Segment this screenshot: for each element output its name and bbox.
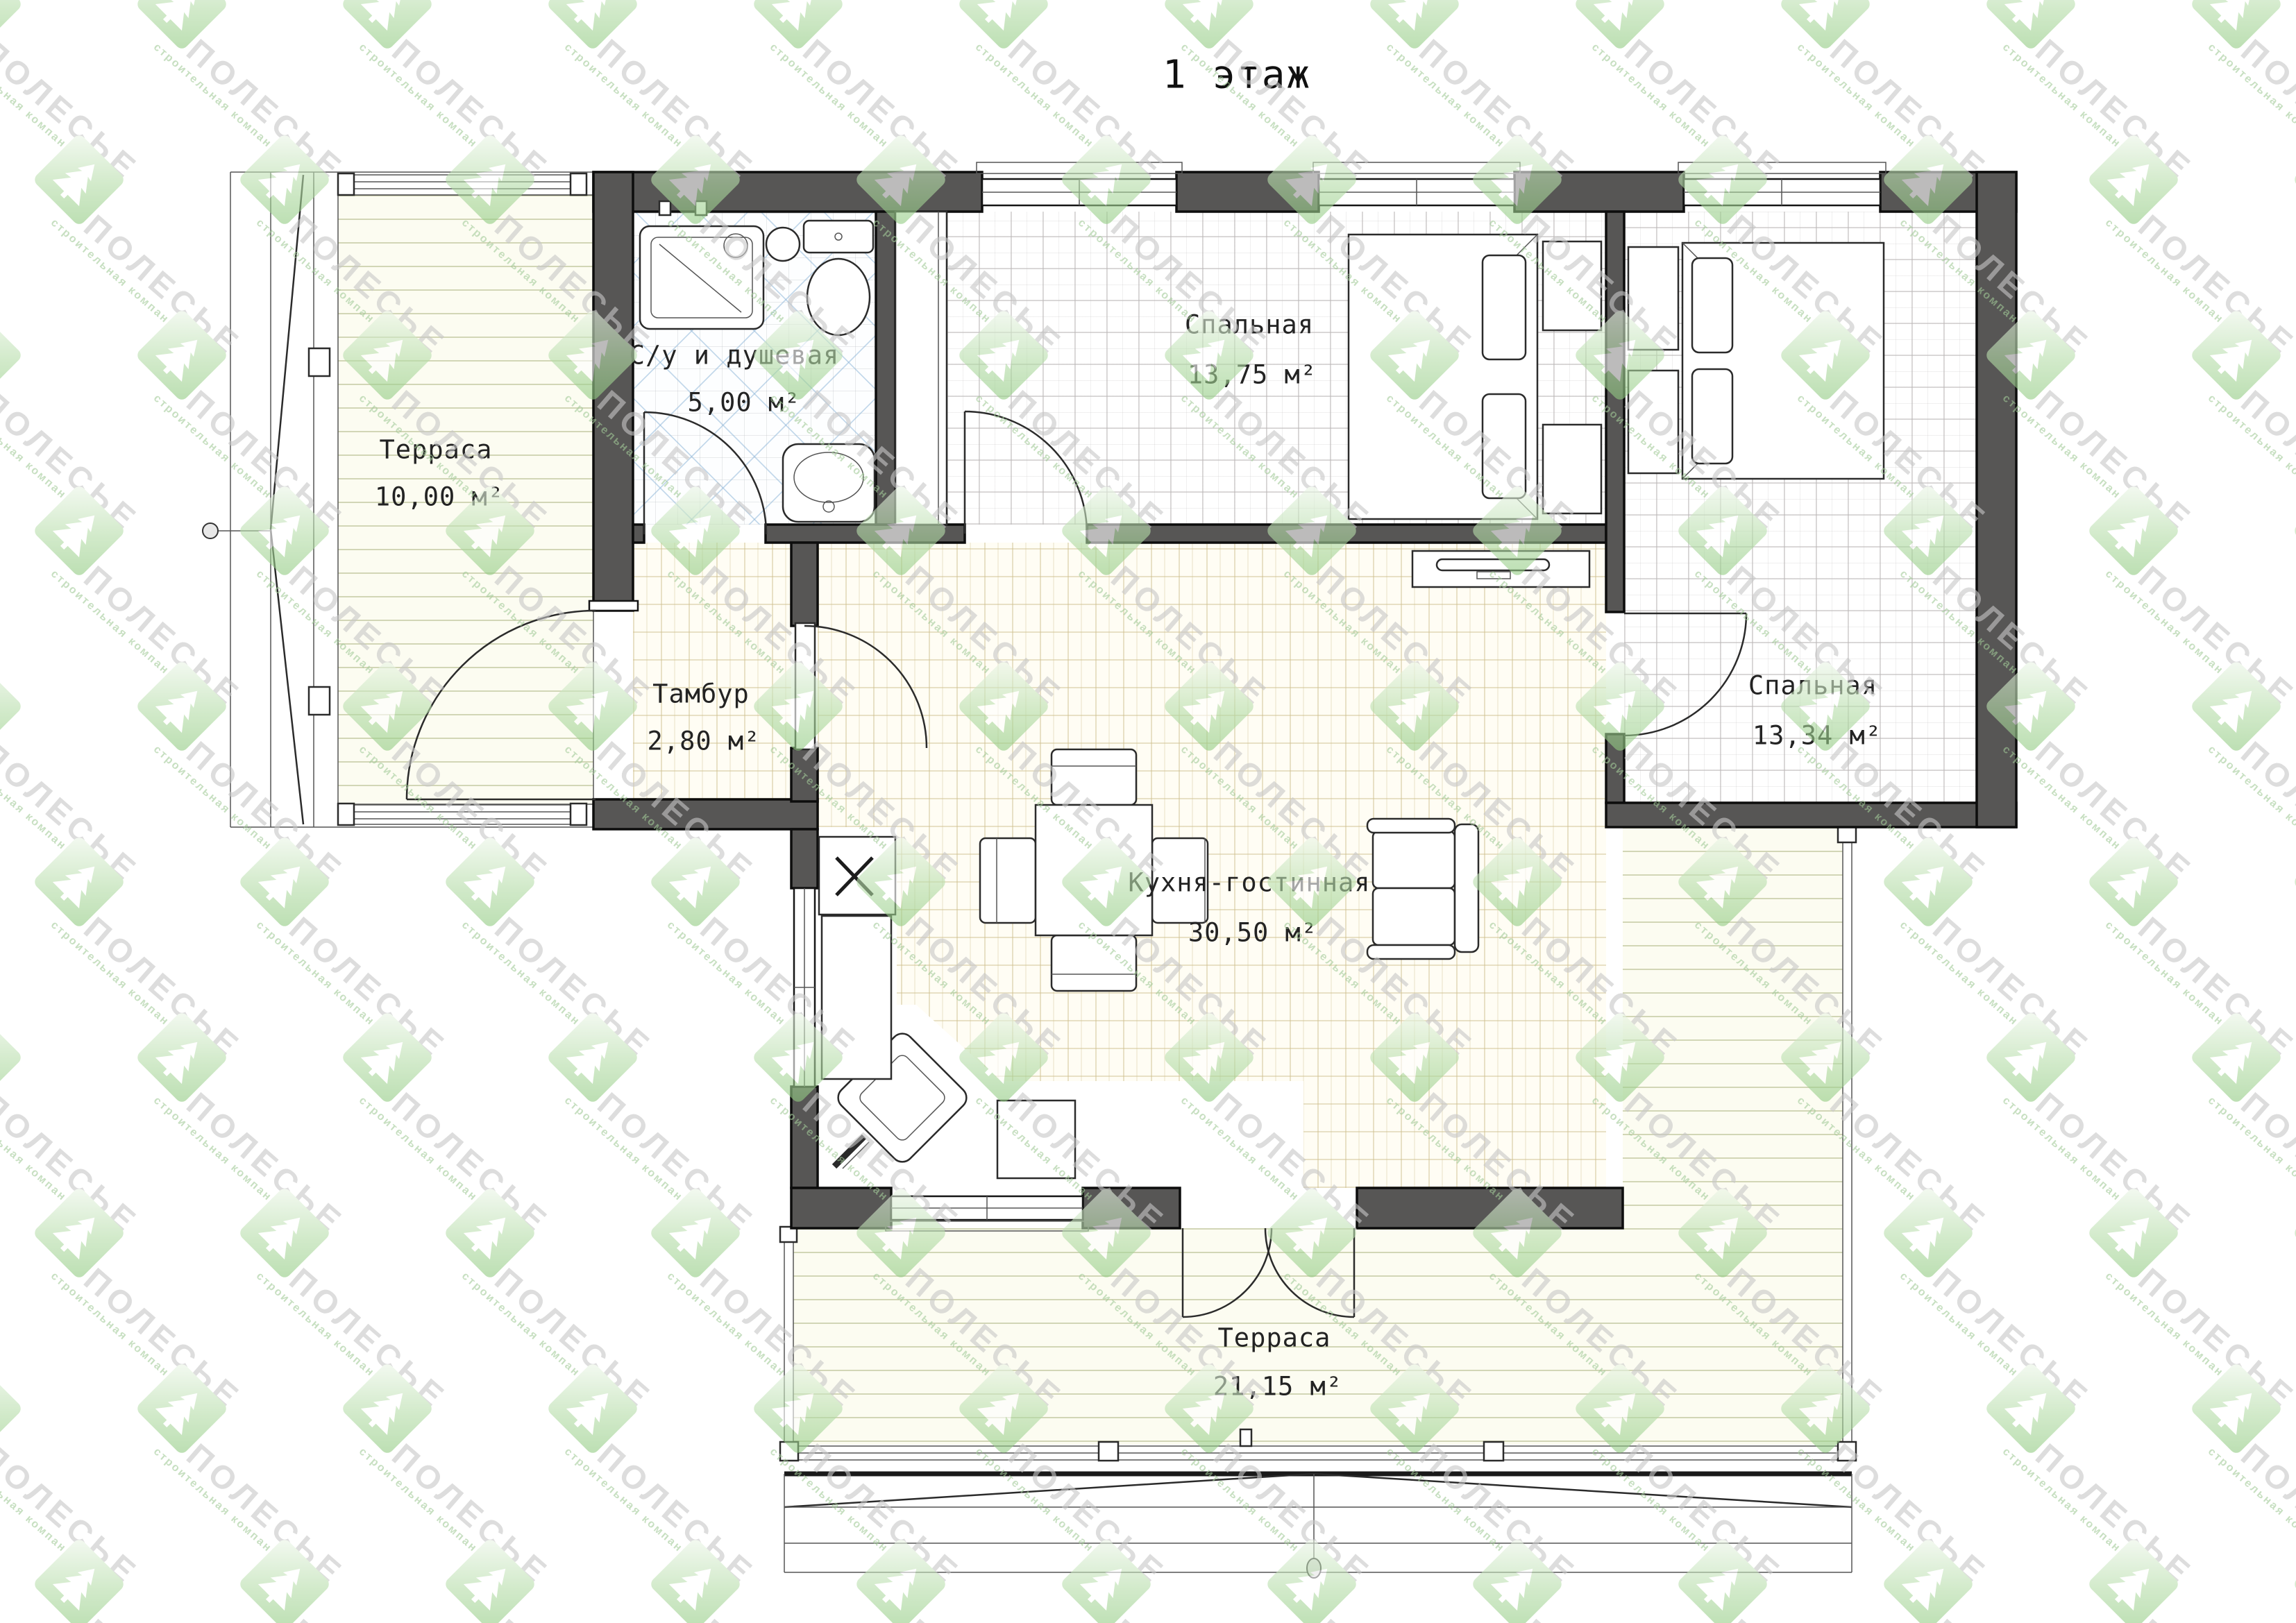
label-living-name: Кухня-гостинная	[1128, 868, 1370, 898]
datum-marker	[203, 523, 218, 538]
nightstand	[1543, 425, 1601, 513]
nightstand	[1628, 247, 1678, 350]
window	[886, 1196, 1088, 1231]
label-living-area: 30,50 м²	[1188, 918, 1317, 948]
tap	[659, 201, 670, 215]
page-title: 1 этаж	[1163, 53, 1311, 98]
pillow	[1483, 255, 1526, 359]
boiler	[766, 228, 800, 261]
datum-marker	[1307, 1558, 1321, 1578]
bedroom2-furniture	[1628, 243, 1884, 479]
label-terrace-bottom-name: Терраса	[1218, 1323, 1331, 1353]
closet-niche	[895, 212, 947, 525]
label-vestibule-area: 2,80 м²	[648, 726, 761, 756]
kitchen-block	[819, 837, 895, 1079]
label-bedroom1-area: 13,75 м²	[1188, 360, 1317, 390]
pillow	[1692, 258, 1732, 352]
sofa	[1367, 819, 1478, 959]
door-bathroom	[644, 412, 766, 534]
window	[1678, 162, 1886, 205]
roof-outline	[784, 1474, 1852, 1578]
pillow	[1692, 369, 1732, 464]
kitchen-counter	[822, 916, 891, 1079]
label-bedroom2-name: Спальная	[1748, 671, 1877, 701]
label-bedroom1-name: Спальная	[1185, 310, 1314, 340]
label-bedroom2-area: 13,34 м²	[1753, 721, 1882, 751]
tv-stand	[1412, 551, 1589, 587]
washbasin	[783, 444, 875, 522]
door-vestibule-living	[795, 623, 927, 749]
door-bedroom-2	[1624, 613, 1746, 736]
chair	[1052, 749, 1136, 805]
label-terrace-left-area: 10,00 м²	[375, 482, 504, 512]
plan-linework	[0, 0, 2296, 1623]
shower-cabin	[640, 226, 763, 329]
window	[977, 162, 1182, 205]
label-terrace-bottom-area: 21,15 м²	[1213, 1372, 1342, 1402]
pillow	[1483, 394, 1526, 498]
chair	[980, 838, 1036, 923]
nightstand	[1543, 241, 1601, 330]
nightstand	[1628, 371, 1678, 473]
window	[794, 888, 815, 1087]
toilet	[804, 221, 873, 335]
tap	[695, 201, 707, 215]
label-vestibule-name: Тамбур	[652, 679, 750, 709]
bedroom1-furniture	[1349, 235, 1601, 519]
door-terrace	[407, 601, 638, 799]
label-bathroom-name: С/у и душевая	[630, 341, 840, 371]
label-bathroom-area: 5,00 м²	[688, 388, 801, 418]
chair	[1052, 935, 1136, 991]
door-bedroom-1	[965, 411, 1087, 534]
label-terrace-left-name: Терраса	[380, 435, 493, 465]
coffee-table	[997, 1101, 1075, 1178]
floor-plan-canvas: 1 этаж Терраса 10,00 м² С/у и душевая 5,…	[0, 0, 2296, 1623]
window	[1313, 162, 1520, 205]
door-french-terrace	[1183, 1228, 1354, 1317]
